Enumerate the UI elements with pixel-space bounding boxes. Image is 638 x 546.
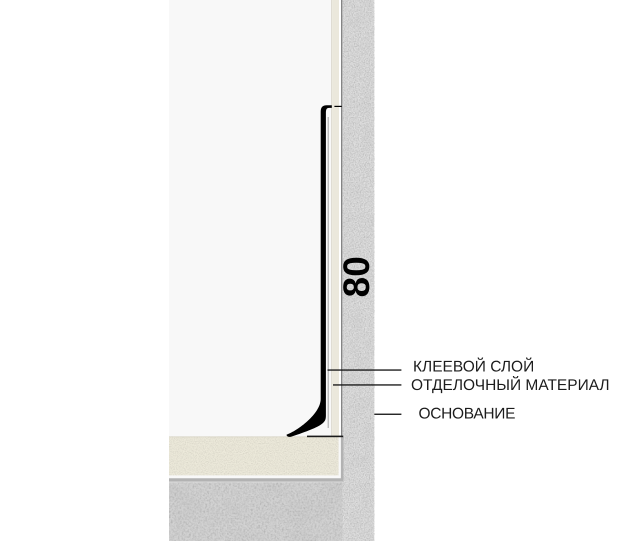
svg-text:КЛЕЕВОЙ СЛОЙ: КЛЕЕВОЙ СЛОЙ: [413, 357, 534, 375]
svg-text:ОТДЕЛОЧНЫЙ МАТЕРИАЛ: ОТДЕЛОЧНЫЙ МАТЕРИАЛ: [411, 376, 610, 394]
svg-text:ОСНОВАНИЕ: ОСНОВАНИЕ: [419, 406, 516, 423]
svg-text:80: 80: [336, 256, 377, 297]
